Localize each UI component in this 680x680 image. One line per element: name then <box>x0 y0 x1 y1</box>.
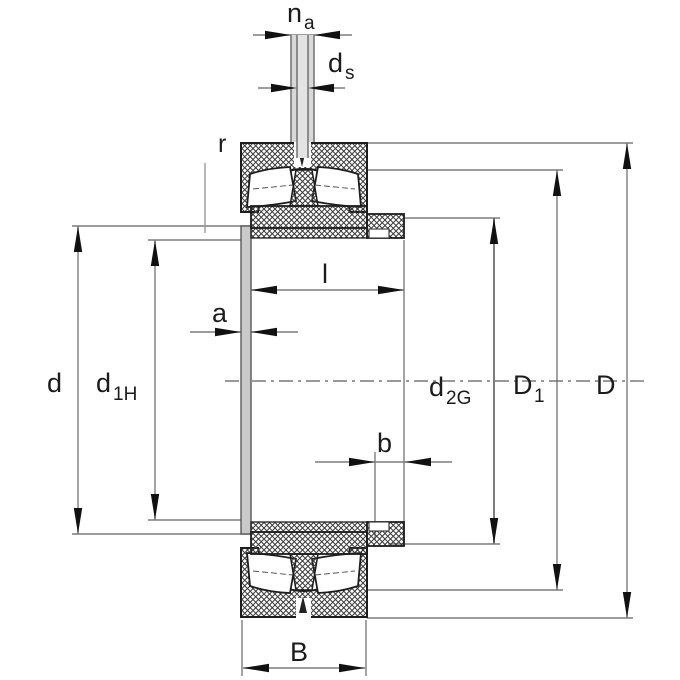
lubrication-pin <box>291 35 314 158</box>
label-ds-sub: s <box>345 63 355 84</box>
label-d2G: d <box>429 372 444 402</box>
lock-nut-notch-top <box>369 229 389 238</box>
inner-ring-top <box>251 206 367 228</box>
inner-ring-rib-bottom <box>290 554 318 590</box>
inner-ring-rib-top <box>290 170 318 206</box>
label-b: b <box>377 428 392 458</box>
lock-nut-notch-bottom <box>369 522 389 531</box>
bearing-section-top <box>241 141 404 238</box>
label-d: d <box>47 368 62 398</box>
label-r: r <box>218 130 226 158</box>
label-a: a <box>212 298 228 328</box>
label-D1-sub: 1 <box>534 386 545 407</box>
label-ds: d <box>328 48 343 78</box>
bearing-drawing-svg: n a d s r l a b B d d 1H d 2G D 1 D <box>0 0 680 680</box>
label-l: l <box>322 259 328 289</box>
label-B: B <box>290 637 308 667</box>
inner-ring-bottom <box>251 532 367 554</box>
label-d1H-sub: 1H <box>113 384 137 405</box>
label-D1: D <box>513 370 533 400</box>
technical-drawing: n a d s r l a b B d d 1H d 2G D 1 D <box>0 0 680 680</box>
label-d2G-sub: 2G <box>446 388 471 409</box>
sleeve-top <box>251 228 367 238</box>
label-d1H: d <box>96 368 111 398</box>
sleeve-bottom <box>251 522 367 532</box>
bearing-section-bottom <box>241 522 404 619</box>
label-na-sub: a <box>304 13 315 34</box>
adapter-sleeve-end-strip <box>241 226 251 534</box>
label-na: n <box>287 0 302 28</box>
label-D: D <box>596 370 616 400</box>
